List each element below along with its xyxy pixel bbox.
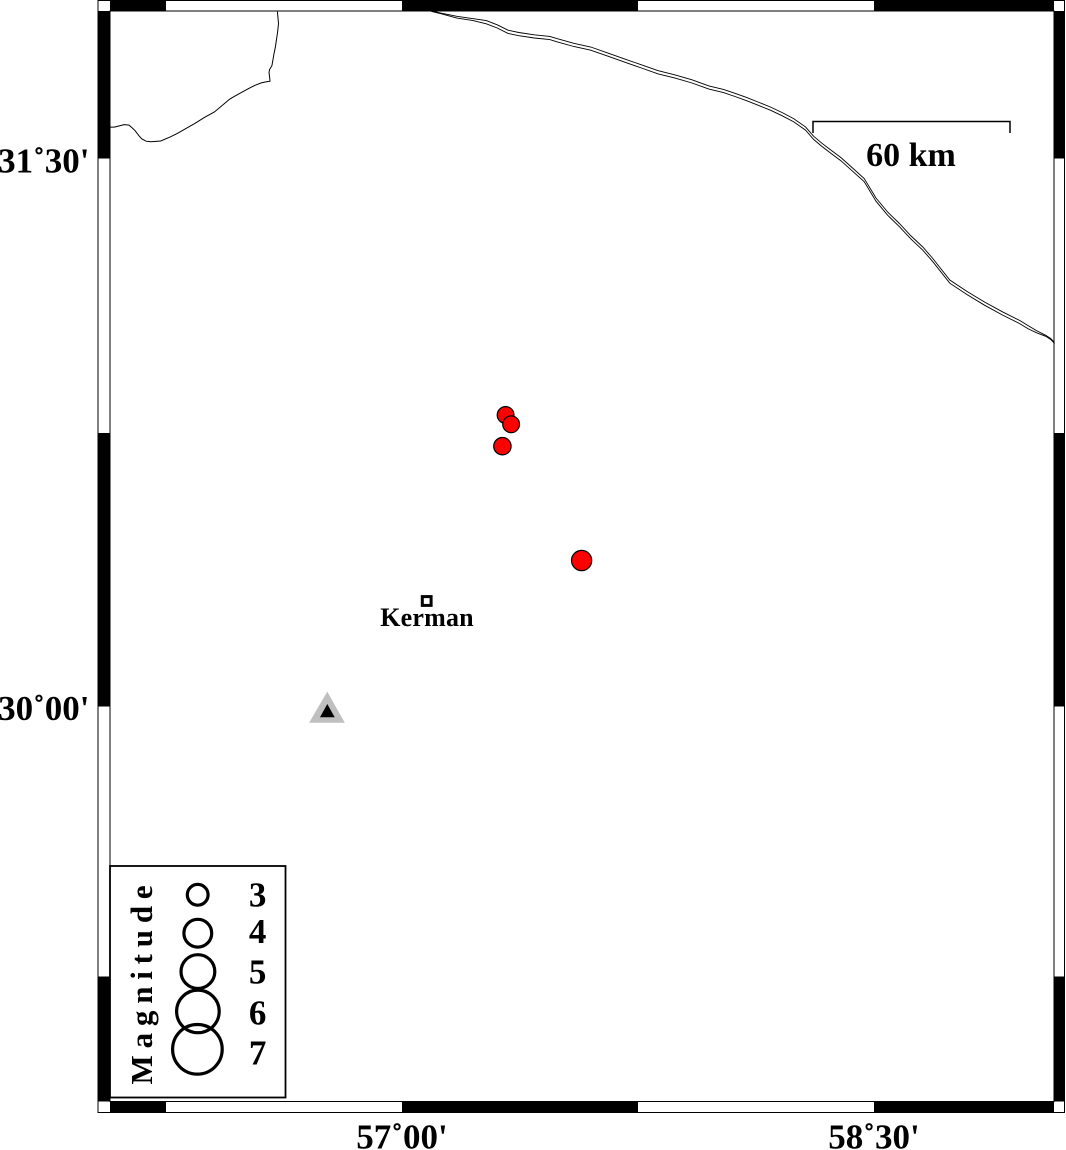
svg-text:Magnitude: Magnitude bbox=[124, 879, 159, 1085]
svg-text:Kerman: Kerman bbox=[380, 603, 474, 632]
svg-text:7: 7 bbox=[249, 1034, 267, 1073]
svg-text:6: 6 bbox=[249, 994, 267, 1033]
svg-text:60 km: 60 km bbox=[866, 137, 956, 174]
svg-text:3: 3 bbox=[249, 876, 267, 915]
svg-text:4: 4 bbox=[249, 912, 267, 951]
svg-text:58˚30': 58˚30' bbox=[828, 1118, 919, 1150]
svg-text:5: 5 bbox=[249, 953, 267, 992]
svg-text:31˚30': 31˚30' bbox=[0, 142, 90, 181]
svg-text:57˚00': 57˚00' bbox=[356, 1118, 447, 1150]
svg-text:30˚00': 30˚00' bbox=[0, 689, 90, 728]
